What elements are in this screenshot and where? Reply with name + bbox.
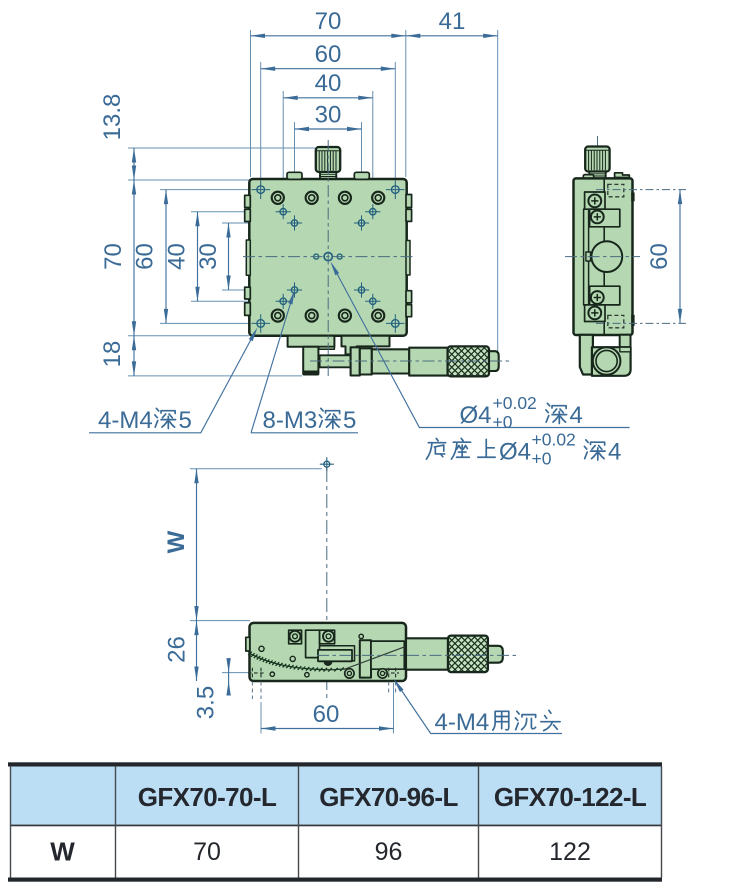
svg-text:GFX70-122-L: GFX70-122-L <box>494 782 647 812</box>
svg-text:30: 30 <box>195 243 222 270</box>
svg-text:3.5: 3.5 <box>193 686 220 719</box>
svg-text:40: 40 <box>164 243 191 270</box>
svg-text:60: 60 <box>646 243 673 270</box>
svg-text:40: 40 <box>315 70 342 97</box>
svg-text:+0.02: +0.02 <box>493 393 537 413</box>
svg-text:4: 4 <box>608 439 621 466</box>
svg-text:30: 30 <box>315 102 342 129</box>
svg-text:W: W <box>163 530 190 553</box>
svg-text:60: 60 <box>315 41 342 68</box>
svg-text:5: 5 <box>343 407 356 434</box>
svg-text:+0.02: +0.02 <box>532 430 576 450</box>
svg-text:+0: +0 <box>493 412 513 432</box>
svg-text:13.8: 13.8 <box>99 94 126 141</box>
svg-text:4: 4 <box>570 402 583 429</box>
svg-text:26: 26 <box>164 636 191 663</box>
svg-text:96: 96 <box>375 838 403 866</box>
svg-text:Ø4: Ø4 <box>460 402 492 429</box>
svg-text:70: 70 <box>193 838 221 866</box>
svg-text:+0: +0 <box>532 449 552 469</box>
svg-text:122: 122 <box>549 838 591 866</box>
svg-text:Ø4: Ø4 <box>499 439 531 466</box>
svg-text:8-M3: 8-M3 <box>263 407 318 434</box>
svg-text:70: 70 <box>100 243 127 270</box>
svg-text:4-M4: 4-M4 <box>98 407 153 434</box>
svg-text:60: 60 <box>132 243 159 270</box>
svg-text:60: 60 <box>313 701 340 728</box>
svg-text:5: 5 <box>179 407 192 434</box>
svg-text:70: 70 <box>315 8 342 35</box>
svg-text:4-M4: 4-M4 <box>435 709 490 736</box>
svg-text:GFX70-70-L: GFX70-70-L <box>138 782 277 812</box>
svg-text:GFX70-96-L: GFX70-96-L <box>319 782 458 812</box>
svg-text:41: 41 <box>439 8 466 35</box>
svg-text:W: W <box>50 837 75 867</box>
svg-text:18: 18 <box>99 341 126 368</box>
